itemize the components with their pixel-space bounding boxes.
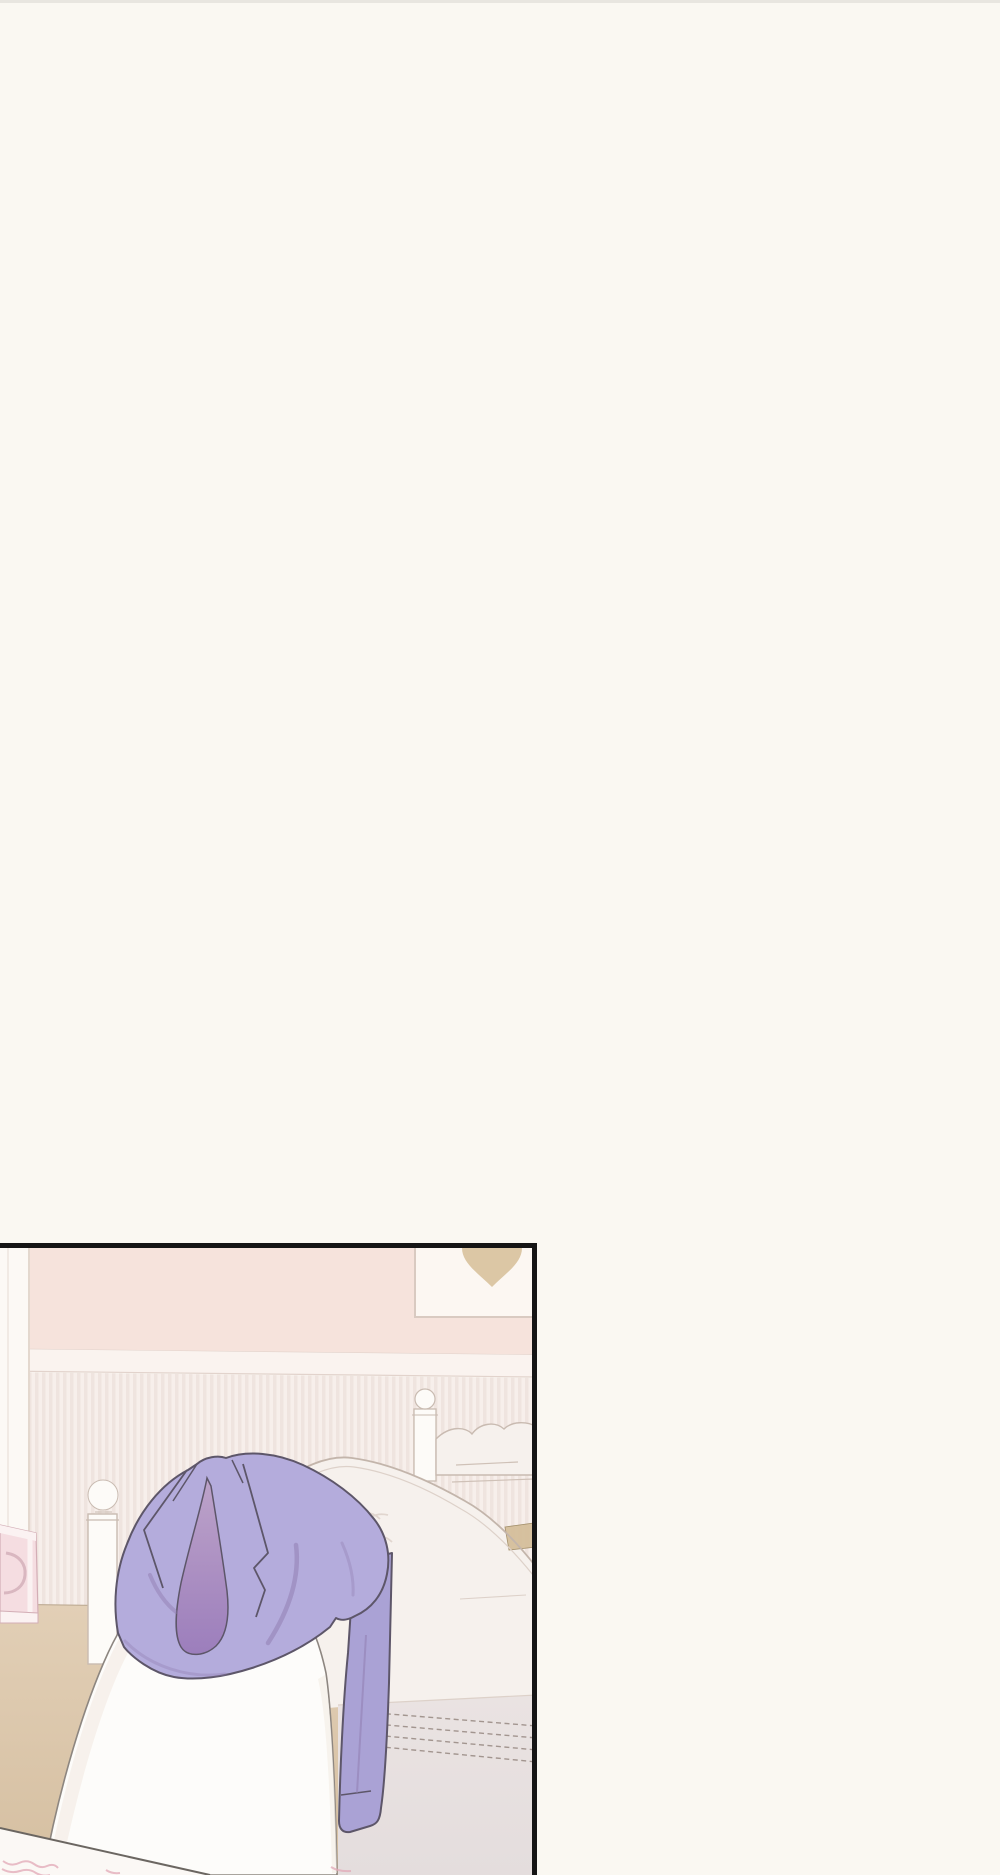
comic-panel-bedroom bbox=[0, 1243, 537, 1875]
previous-panel-edge-remnant bbox=[0, 0, 1000, 3]
pink-dresser bbox=[0, 1525, 38, 1623]
bedroom-illustration bbox=[0, 1243, 537, 1875]
headboard-crest bbox=[436, 1423, 537, 1475]
panel-border-right bbox=[532, 1243, 537, 1875]
lamp-sphere bbox=[88, 1480, 118, 1510]
picture-frame bbox=[415, 1243, 537, 1317]
panel-border-top bbox=[0, 1243, 537, 1248]
bedpost-finial bbox=[412, 1389, 438, 1481]
webtoon-page bbox=[0, 0, 1000, 1875]
wardrobe bbox=[0, 1245, 30, 1535]
